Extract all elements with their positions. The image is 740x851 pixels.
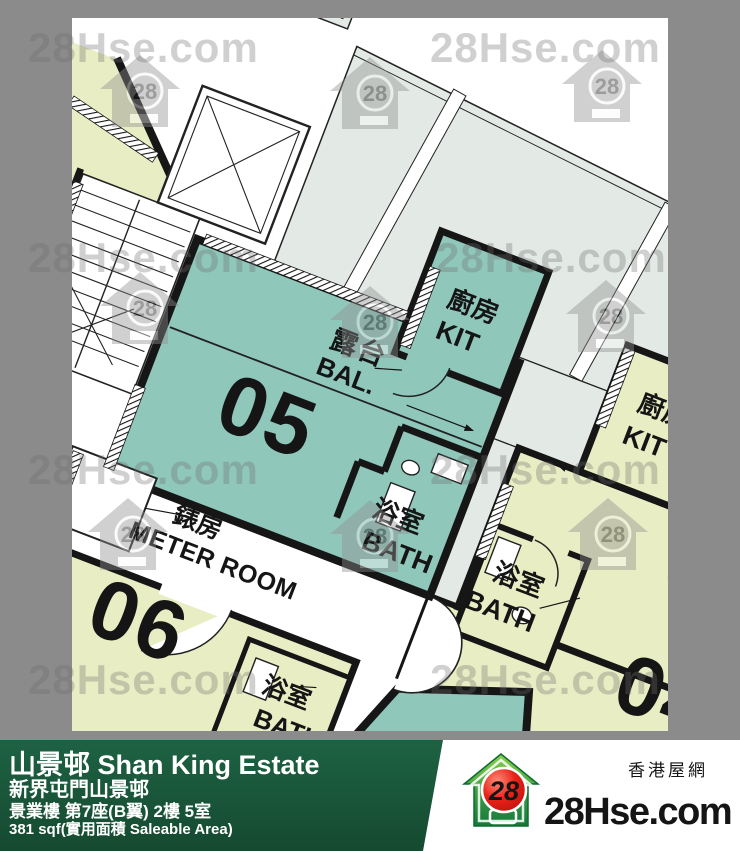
watermark-text: 28Hse.com [436, 234, 667, 281]
28hse-logo[interactable]: 28 28Hse.com 香港屋網 [458, 744, 738, 849]
watermark-text: 28Hse.com [28, 446, 259, 493]
site-name-zh: 香港屋網 [628, 761, 708, 780]
watermark-text: 28Hse.com [430, 446, 661, 493]
floorplan-image: 28 [0, 0, 740, 740]
watermark-text: 28Hse.com [28, 24, 259, 71]
watermark-text: 28Hse.com [28, 656, 259, 703]
site-name-en[interactable]: 28Hse.com [544, 791, 731, 833]
28hse-house-icon: 28 [464, 754, 538, 826]
watermark-text: 28Hse.com [430, 24, 661, 71]
footer-banner: 山景邨 Shan King Estate 新界屯門山景邨 景業樓 第7座(B翼)… [0, 740, 740, 851]
watermark-text: 28Hse.com [28, 234, 259, 281]
floorplan-page: 28 [0, 0, 740, 851]
saleable-area-info: 381 sqf(實用面積 Saleable Area) [9, 818, 233, 839]
logo-28-number: 28 [488, 776, 519, 806]
watermark-text: 28Hse.com [430, 656, 661, 703]
